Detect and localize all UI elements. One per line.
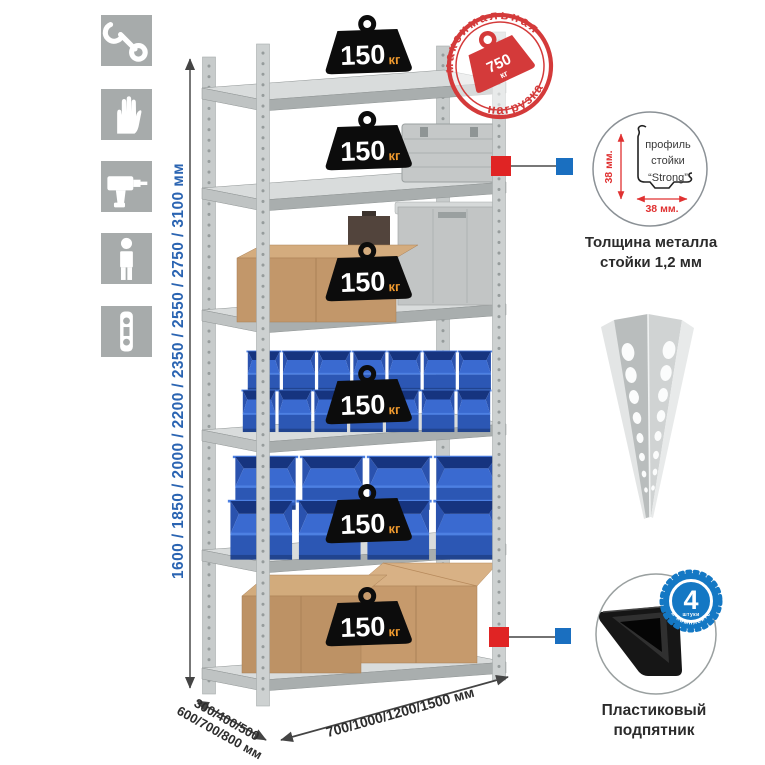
profile-caption: Толщина металла стойки 1,2 мм bbox=[566, 233, 736, 272]
weight-unit: кг bbox=[388, 52, 401, 67]
profile-dim-vertical: 38 мм. bbox=[603, 150, 615, 183]
profile-dim-horizontal: 38 мм. bbox=[645, 203, 678, 215]
callout-foot bbox=[489, 627, 571, 647]
profile-caption-line2: стойки 1,2 мм bbox=[566, 253, 736, 273]
weight-value: 150 bbox=[340, 389, 386, 421]
red-marker-bottom bbox=[489, 627, 509, 647]
weight-unit: кг bbox=[388, 148, 401, 163]
weight-value: 150 bbox=[340, 39, 386, 71]
profile-detail-circle: 38 мм. 38 мм. профиль стойки “Strong” bbox=[593, 112, 707, 226]
weight-unit: кг bbox=[388, 279, 401, 294]
weight-value: 150 bbox=[340, 266, 386, 298]
weight-unit: кг bbox=[388, 402, 401, 417]
infographic-canvas: 150 кг 150 кг 150 кг 150 кг 150 кг bbox=[0, 0, 765, 765]
height-dimensions-label: 1600 / 1850 / 2000 / 2200 / 2350 / 2550 … bbox=[170, 46, 188, 696]
plastic-foot-circle: 4 штуки в комплекте bbox=[596, 572, 721, 695]
badge-count-unit: штуки bbox=[682, 612, 699, 618]
blue-marker-top bbox=[556, 158, 573, 175]
weight-unit: кг bbox=[388, 624, 401, 639]
profile-caption-line1: Толщина металла bbox=[566, 233, 736, 253]
weight-value: 150 bbox=[340, 508, 386, 540]
weight-unit: кг bbox=[388, 521, 401, 536]
callout-profile bbox=[491, 156, 573, 176]
weight-badge-2: 150 кг bbox=[324, 112, 412, 170]
included-count-badge: 4 штуки в комплекте bbox=[662, 572, 721, 631]
blue-marker-bottom bbox=[555, 628, 571, 644]
rack-graphic: 150 кг 150 кг 150 кг 150 кг 150 кг bbox=[0, 0, 765, 765]
aluminum-case bbox=[402, 124, 502, 182]
weight-value: 150 bbox=[340, 611, 386, 643]
weight-value: 150 bbox=[340, 135, 386, 167]
red-marker-top bbox=[491, 156, 511, 176]
profile-label-3: “Strong” bbox=[648, 172, 688, 184]
profile-label-1: профиль bbox=[645, 139, 691, 151]
angle-post-image bbox=[601, 314, 694, 519]
foot-caption: Пластиковый подпятник bbox=[566, 701, 742, 741]
badge-count: 4 bbox=[683, 585, 698, 615]
weight-badge-1: 150 кг bbox=[324, 16, 412, 74]
foot-caption-line2: подпятник bbox=[566, 721, 742, 741]
profile-label-2: стойки bbox=[651, 155, 685, 167]
foot-caption-line1: Пластиковый bbox=[566, 701, 742, 721]
